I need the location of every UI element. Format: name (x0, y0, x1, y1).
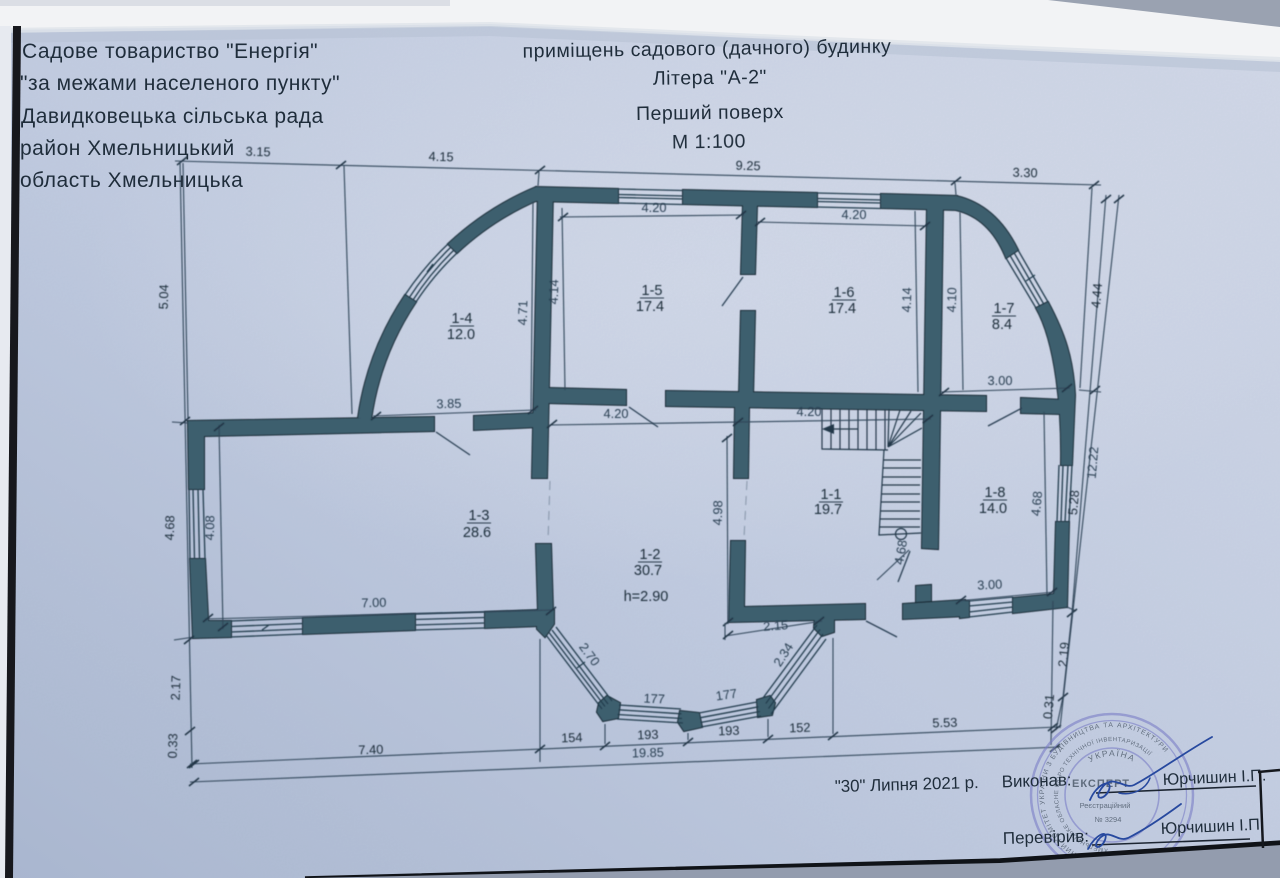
svg-text:4.44: 4.44 (1088, 283, 1105, 309)
svg-text:4.71: 4.71 (515, 300, 531, 325)
svg-text:1-5: 1-5 (642, 283, 663, 299)
svg-text:4.20: 4.20 (797, 404, 822, 419)
svg-text:4.20: 4.20 (842, 207, 867, 222)
svg-text:4.20: 4.20 (604, 406, 629, 421)
svg-text:Перший поверх: Перший поверх (636, 101, 784, 125)
svg-text:4.08: 4.08 (202, 515, 218, 540)
svg-text:193: 193 (637, 727, 659, 743)
svg-text:193: 193 (718, 723, 740, 739)
svg-text:12.0: 12.0 (447, 327, 475, 343)
svg-text:152: 152 (789, 720, 811, 736)
svg-text:5.28: 5.28 (1065, 490, 1082, 516)
svg-text:"за межами населеного пункту": "за межами населеного пункту" (20, 72, 340, 95)
svg-text:2.17: 2.17 (168, 675, 184, 700)
svg-text:19.85: 19.85 (632, 744, 665, 760)
svg-text:2.15: 2.15 (763, 617, 789, 634)
svg-text:4.20: 4.20 (642, 200, 667, 215)
svg-text:3.15: 3.15 (245, 144, 270, 160)
svg-text:4.15: 4.15 (428, 149, 453, 165)
svg-text:177: 177 (643, 690, 665, 706)
svg-text:1-2: 1-2 (640, 547, 661, 563)
svg-text:12.22: 12.22 (1084, 446, 1102, 479)
svg-text:17.4: 17.4 (636, 299, 664, 315)
svg-text:28.6: 28.6 (463, 525, 491, 541)
svg-text:Перевірив:: Перевірив: (1003, 827, 1090, 848)
svg-text:район Хмельницький: район Хмельницький (20, 137, 235, 160)
svg-text:4.98: 4.98 (710, 500, 726, 525)
svg-text:9.25: 9.25 (735, 158, 760, 174)
svg-text:№ 3294: № 3294 (1095, 815, 1122, 824)
svg-text:Літера "А-2": Літера "А-2" (653, 66, 767, 90)
svg-text:1-3: 1-3 (469, 508, 490, 524)
svg-text:М 1:100: М 1:100 (672, 130, 746, 153)
svg-text:8.4: 8.4 (992, 317, 1012, 333)
svg-text:17.4: 17.4 (828, 301, 856, 317)
svg-text:5.53: 5.53 (932, 715, 957, 731)
svg-text:1-7: 1-7 (994, 301, 1015, 317)
svg-text:1-4: 1-4 (452, 311, 473, 327)
svg-text:154: 154 (561, 730, 583, 746)
svg-text:Реєстраційний: Реєстраційний (1080, 801, 1131, 810)
svg-text:4.10: 4.10 (944, 287, 960, 312)
svg-text:4.14: 4.14 (546, 279, 562, 304)
svg-text:7.40: 7.40 (358, 742, 383, 758)
svg-text:h=2.90: h=2.90 (624, 589, 669, 605)
svg-text:3.85: 3.85 (436, 396, 461, 412)
svg-text:1-6: 1-6 (834, 285, 855, 301)
svg-text:4.14: 4.14 (899, 287, 915, 312)
svg-text:0.31: 0.31 (1040, 694, 1057, 720)
svg-text:30.7: 30.7 (634, 563, 662, 579)
svg-text:область Хмельницька: область Хмельницька (20, 169, 243, 192)
svg-text:3.30: 3.30 (1012, 165, 1037, 181)
svg-text:1-8: 1-8 (985, 485, 1006, 501)
svg-text:7.00: 7.00 (361, 595, 386, 611)
svg-text:Давидковецька сільська рада: Давидковецька сільська рада (21, 105, 324, 128)
svg-text:1-1: 1-1 (821, 487, 842, 503)
svg-text:Садове товариство "Енергія": Садове товариство "Енергія" (22, 40, 318, 63)
svg-text:19.7: 19.7 (814, 502, 842, 518)
svg-text:3.00: 3.00 (977, 576, 1003, 592)
svg-text:0.33: 0.33 (165, 733, 181, 758)
svg-text:4.68: 4.68 (162, 515, 178, 540)
svg-text:14.0: 14.0 (979, 501, 1007, 517)
svg-text:4.68: 4.68 (1028, 491, 1045, 517)
svg-text:3.00: 3.00 (988, 373, 1013, 388)
svg-text:177: 177 (715, 686, 738, 704)
svg-text:5.04: 5.04 (156, 284, 172, 309)
